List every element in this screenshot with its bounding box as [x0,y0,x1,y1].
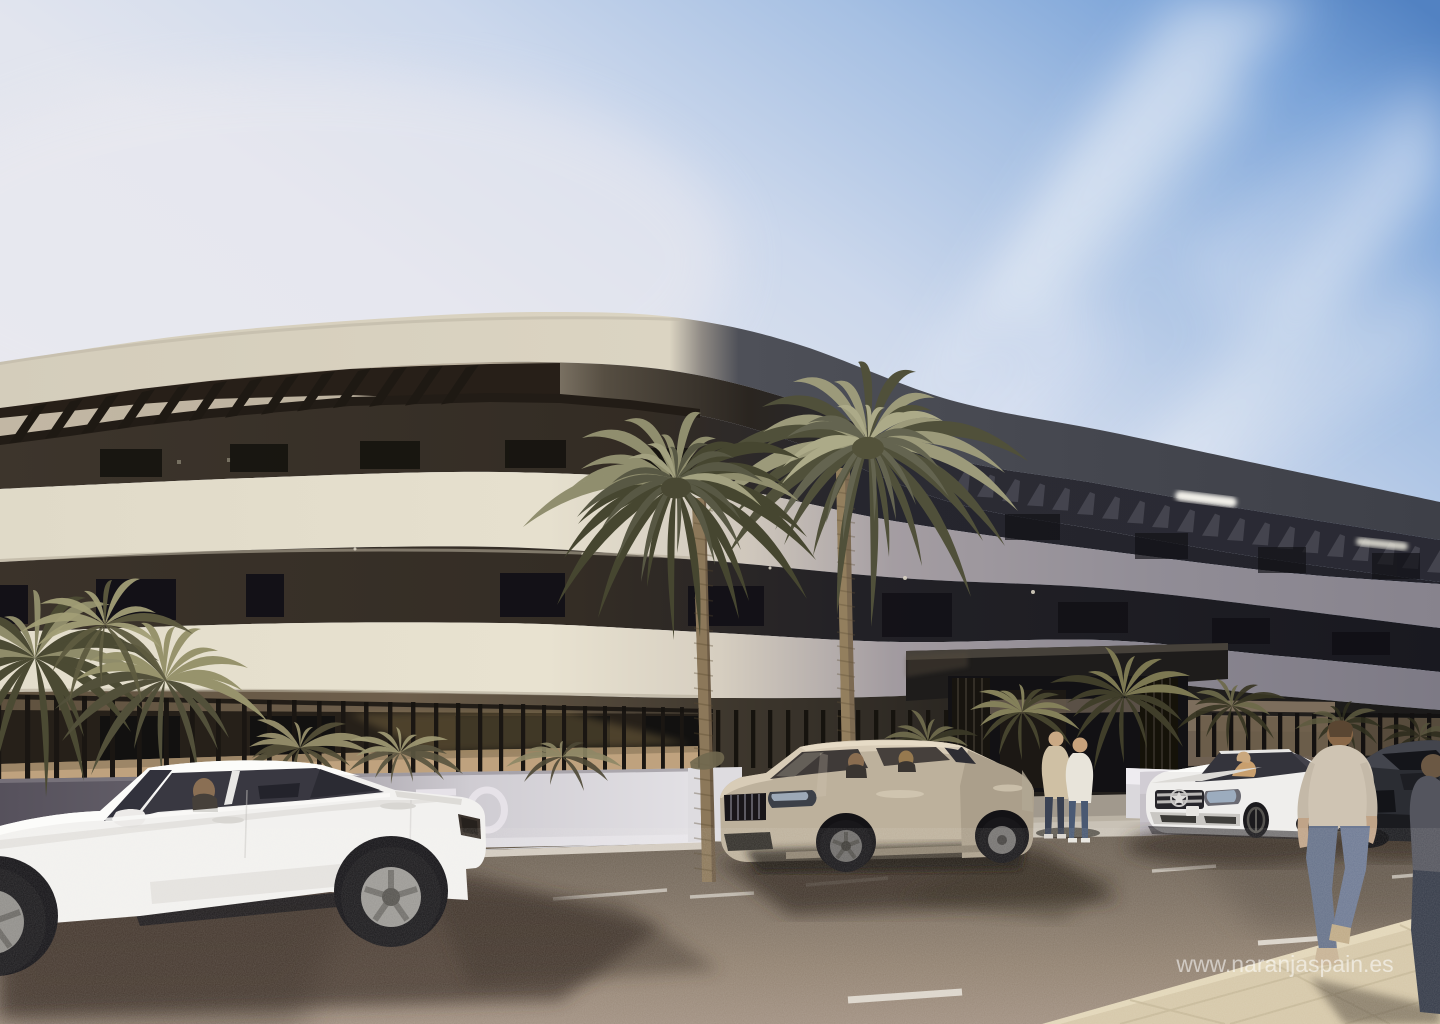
svg-text:www.naranjaspain.es: www.naranjaspain.es [1175,951,1393,977]
